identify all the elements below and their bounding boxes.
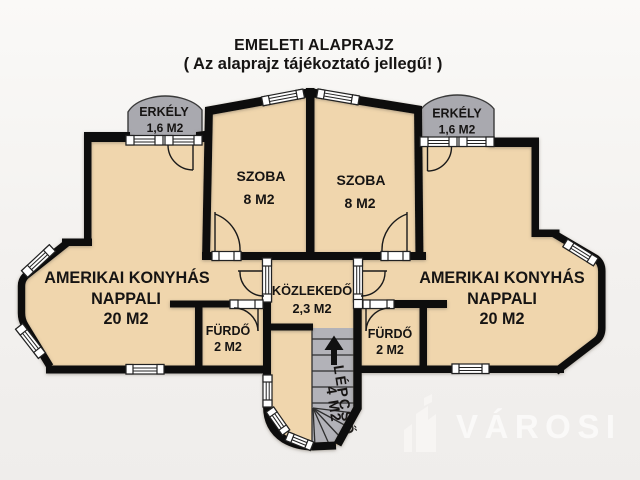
svg-text:1,6 M2: 1,6 M2 [439, 123, 476, 137]
svg-text:( Az alaprajz tájékoztató jell: ( Az alaprajz tájékoztató jellegű! ) [184, 55, 443, 73]
svg-text:FÜRDŐ: FÜRDŐ [206, 323, 251, 338]
svg-text:20 M2: 20 M2 [480, 310, 525, 328]
svg-text:20 M2: 20 M2 [104, 310, 149, 328]
svg-text:ERKÉLY: ERKÉLY [432, 106, 482, 121]
svg-text:KÖZLEKEDŐ: KÖZLEKEDŐ [272, 283, 352, 298]
svg-text:SZOBA: SZOBA [237, 168, 286, 184]
svg-text:EMELETI ALAPRAJZ: EMELETI ALAPRAJZ [234, 37, 394, 54]
svg-text:2 M2: 2 M2 [376, 343, 404, 357]
svg-text:ERKÉLY: ERKÉLY [139, 104, 189, 119]
svg-text:2 M2: 2 M2 [214, 340, 242, 354]
svg-text:AMERIKAI KONYHÁS: AMERIKAI KONYHÁS [44, 268, 210, 287]
svg-text:8 M2: 8 M2 [243, 191, 274, 207]
svg-text:FÜRDŐ: FÜRDŐ [368, 326, 413, 341]
svg-text:NAPPALI: NAPPALI [467, 290, 537, 308]
svg-text:NAPPALI: NAPPALI [91, 290, 161, 308]
svg-text:1,6 M2: 1,6 M2 [147, 121, 184, 135]
svg-text:2,3 M2: 2,3 M2 [292, 301, 331, 316]
svg-text:SZOBA: SZOBA [337, 172, 386, 188]
svg-text:AMERIKAI KONYHÁS: AMERIKAI KONYHÁS [419, 268, 585, 287]
svg-text:VÁROSI: VÁROSI [456, 408, 622, 445]
svg-text:8 M2: 8 M2 [344, 195, 375, 211]
